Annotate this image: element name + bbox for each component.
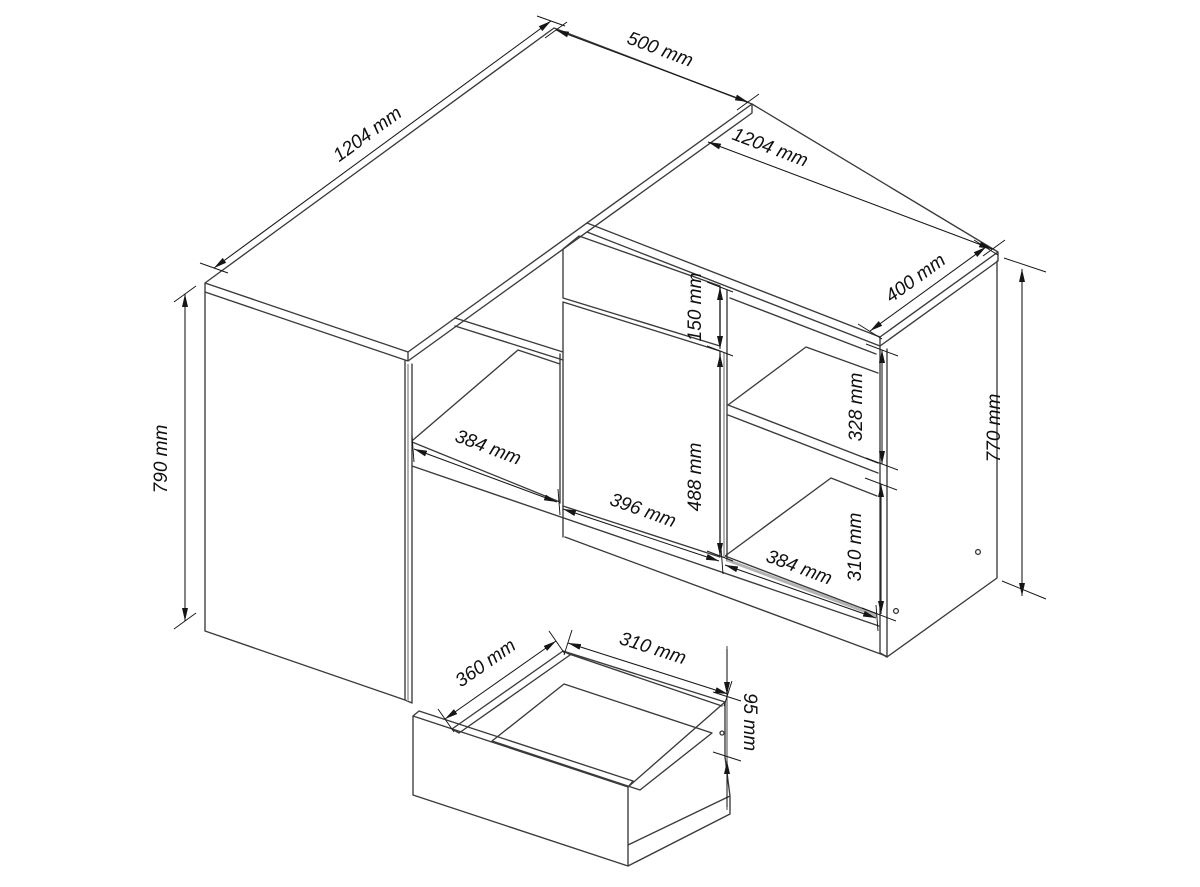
dim-label-cabinet-depth: 400 mm (882, 250, 950, 307)
dim-line-desk-length (214, 21, 551, 268)
desk-side-panel (205, 292, 412, 703)
screw-hole (720, 731, 724, 735)
dim-label-cabinet-height: 770 mm (984, 394, 1005, 463)
dimension-lines (185, 21, 1022, 810)
dim-label-desk-height: 790 mm (151, 425, 172, 494)
dim-label-door-width: 396 mm (607, 489, 679, 532)
dim-label-right-opening-width: 384 mm (763, 546, 835, 590)
extension-ticks (174, 16, 1046, 761)
cabinet-right-panel (880, 261, 997, 657)
screw-hole (894, 609, 899, 614)
technical-drawing: 500 mm 1204 mm 1204 mm 400 mm 770 mm 790… (0, 0, 1200, 887)
desk-top (205, 28, 752, 361)
dim-label-drawer-depth: 360 mm (452, 635, 520, 692)
dim-label-drawer-front-height: 150 mm (685, 273, 706, 342)
cabinet-outline (412, 104, 998, 657)
dim-label-door-height: 488 mm (685, 443, 706, 512)
dimension-labels: 500 mm 1204 mm 1204 mm 400 mm 770 mm 790… (151, 28, 1005, 751)
cabinet-left-compartment (412, 318, 563, 503)
cabinet-top (587, 104, 998, 346)
desk-outline (205, 28, 752, 703)
dim-label-drawer-width: 310 mm (617, 628, 689, 669)
dim-label-upper-opening-height: 328 mm (846, 373, 867, 442)
cabinet-base (412, 466, 887, 657)
dim-label-drawer-height: 95 mm (739, 693, 760, 751)
dim-label-lower-opening-height: 310 mm (845, 513, 866, 582)
screw-hole (976, 550, 981, 555)
dim-label-desk-depth: 500 mm (624, 28, 696, 72)
extension-tick-lines (174, 16, 1046, 761)
dim-line-cabinet-length (708, 142, 992, 249)
dim-label-desk-length: 1204 mm (330, 103, 406, 167)
drawing-canvas: 500 mm 1204 mm 1204 mm 400 mm 770 mm 790… (0, 0, 1200, 887)
